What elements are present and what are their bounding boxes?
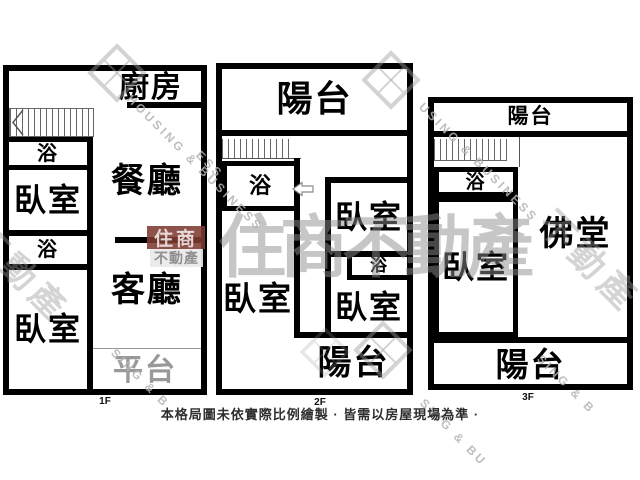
room-bath: 浴 (222, 161, 300, 211)
room-balcony: 陽台 (434, 103, 627, 130)
stairs-1f (9, 108, 94, 137)
room-label: 浴 (249, 175, 273, 197)
room-bedroom: 臥室 (331, 283, 407, 331)
stairs-divider (519, 137, 520, 167)
room-dining: 餐廳 (93, 153, 201, 209)
room-bath: 浴 (352, 255, 407, 275)
floorplan-canvas: 住商不動產 HOUSING & BUSINESS USING & BUSINES… (0, 0, 640, 480)
wall (434, 337, 627, 343)
wall (347, 275, 407, 280)
room-label: 臥室 (442, 251, 510, 283)
room-bedroom: 臥室 (331, 187, 407, 247)
room-bath: 浴 (9, 142, 87, 166)
room-bath: 浴 (9, 236, 87, 264)
room-label: 浴 (465, 173, 486, 192)
room-living: 客廳 (93, 261, 201, 319)
brand-badge-sub: 不動產 (150, 249, 203, 267)
disclaimer-text: 本格局圖未依實際比例繪製 · 皆需以房屋現場為準 · (0, 404, 640, 423)
room-buddhist-hall: 佛堂 (524, 203, 627, 265)
stairs-3f (434, 139, 507, 161)
room-platform: 平台 (93, 353, 197, 389)
room-bath: 浴 (434, 167, 518, 197)
room-balcony: 陽台 (434, 345, 627, 384)
wall (222, 130, 407, 136)
stairs-edge (222, 158, 301, 159)
wall (9, 264, 93, 270)
room-bedroom: 臥室 (9, 170, 87, 230)
door-arrow-icon (292, 181, 314, 197)
wall (325, 177, 407, 183)
room-bedroom: 臥室 (222, 274, 294, 322)
brand-badge: 住商 (147, 226, 205, 249)
floor-tag-3f: 3F (511, 392, 545, 403)
stairs-2f (222, 139, 292, 158)
room-bedroom: 臥室 (434, 197, 518, 337)
platform-divider (93, 348, 201, 349)
floorplan-3f: 陽台 浴 臥室 佛堂 陽台 (428, 97, 633, 390)
stairs-arrow-icon (11, 109, 24, 136)
room-bedroom: 臥室 (9, 296, 87, 362)
wall (434, 131, 627, 137)
